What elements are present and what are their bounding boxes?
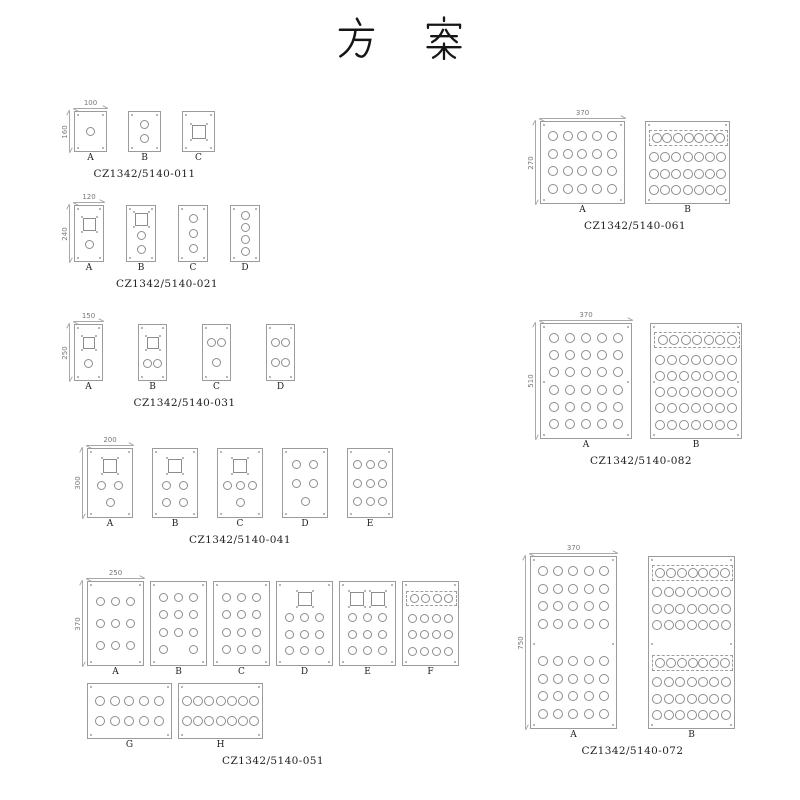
hole-circle xyxy=(563,149,573,159)
panels-strip: ABCDE xyxy=(87,448,393,530)
screw-hole xyxy=(543,124,545,126)
screw-hole xyxy=(612,559,614,561)
screw-hole xyxy=(162,376,164,378)
enclosure-panel xyxy=(128,111,161,152)
corner-tick xyxy=(95,335,97,337)
screw-hole xyxy=(627,326,629,328)
hole-circle xyxy=(584,674,594,684)
hole-circle xyxy=(664,604,674,614)
hole-circle xyxy=(597,419,607,429)
hole-circle xyxy=(688,658,698,668)
hole-circle xyxy=(143,359,152,368)
enclosure-panel xyxy=(540,323,632,439)
hole-circle xyxy=(285,630,294,639)
panel-row: 750AB xyxy=(518,556,735,741)
hole-circle xyxy=(691,355,701,365)
panel-letter: B xyxy=(175,667,182,678)
hole-circle xyxy=(592,131,602,141)
screw-hole xyxy=(612,724,614,726)
panels-strip: GH xyxy=(87,683,263,751)
width-dimension: 200 xyxy=(87,437,133,448)
hole-row xyxy=(129,213,153,226)
screw-hole xyxy=(203,257,205,259)
dimension-line xyxy=(69,111,70,152)
dimension-line xyxy=(530,553,617,554)
hole-circle xyxy=(599,566,609,576)
hole-circle xyxy=(683,169,693,179)
hole-circle xyxy=(671,169,681,179)
hole-circle xyxy=(581,402,591,412)
corner-tick xyxy=(190,123,192,125)
hole-circle xyxy=(667,371,677,381)
hole-row xyxy=(155,459,195,473)
width-dimension-label: 200 xyxy=(87,437,133,444)
hole-row xyxy=(342,613,393,622)
corner-tick xyxy=(312,590,314,592)
hole-circle xyxy=(664,710,674,720)
hole-row xyxy=(155,481,195,490)
corner-tick xyxy=(348,606,350,608)
panel-letter: A xyxy=(107,519,114,530)
hole-circle xyxy=(565,402,575,412)
hole-row xyxy=(216,628,267,637)
hole-circle xyxy=(189,628,198,637)
hole-circle xyxy=(664,677,674,687)
hole-circle xyxy=(691,420,701,430)
enclosure-panel xyxy=(152,448,198,518)
hole-circle xyxy=(106,498,115,507)
hole-row xyxy=(543,367,629,377)
hole-row xyxy=(205,338,228,347)
panel-column: B xyxy=(126,205,156,274)
width-dimension: 120 xyxy=(74,194,104,205)
screw-hole xyxy=(255,208,257,210)
hole-circle xyxy=(692,335,702,345)
screw-hole xyxy=(162,327,164,329)
hole-circle xyxy=(568,566,578,576)
screw-hole xyxy=(612,643,614,645)
hole-circle xyxy=(227,696,237,706)
screw-hole xyxy=(323,451,325,453)
screw-hole xyxy=(131,114,133,116)
hole-circle xyxy=(709,568,719,578)
square-cutout xyxy=(192,125,206,139)
screw-hole xyxy=(202,584,204,586)
hole-circle xyxy=(687,677,697,687)
hole-circle xyxy=(248,481,257,490)
panel-column: C xyxy=(217,448,263,530)
screw-hole xyxy=(181,686,183,688)
ganged-hole-group xyxy=(652,565,733,581)
hole-row xyxy=(90,498,130,507)
hole-circle xyxy=(607,166,617,176)
enclosure-panel xyxy=(276,581,333,666)
dimension-line xyxy=(74,202,104,203)
hole-circle xyxy=(607,149,617,159)
screw-hole xyxy=(350,451,352,453)
hole-circle xyxy=(238,716,248,726)
screw-hole xyxy=(185,114,187,116)
screw-hole xyxy=(730,559,732,561)
screw-hole xyxy=(203,208,205,210)
hole-circle xyxy=(348,613,357,622)
hole-circle xyxy=(193,696,203,706)
hole-circle xyxy=(420,630,429,639)
hole-row xyxy=(543,419,629,429)
screw-hole xyxy=(328,661,330,663)
hole-row xyxy=(153,610,204,619)
corner-tick xyxy=(81,216,83,218)
hole-circle xyxy=(538,584,548,594)
hole-circle xyxy=(241,211,250,220)
hole-circle xyxy=(652,620,662,630)
hole-circle xyxy=(549,419,559,429)
hole-circle xyxy=(444,594,453,603)
height-dimension: 160 xyxy=(62,111,74,152)
hole-circle xyxy=(677,658,687,668)
corner-tick xyxy=(96,231,98,233)
hole-row xyxy=(543,131,622,141)
enclosure-panel xyxy=(213,581,270,666)
hole-circle xyxy=(568,709,578,719)
hole-circle xyxy=(378,646,387,655)
square-cutout xyxy=(168,459,182,473)
hole-circle xyxy=(237,610,246,619)
screw-hole xyxy=(285,513,287,515)
hole-circle xyxy=(660,169,670,179)
width-dimension-label: 100 xyxy=(74,100,107,107)
screw-hole xyxy=(279,661,281,663)
screw-hole xyxy=(533,643,535,645)
height-dimension: 250 xyxy=(62,324,74,381)
hole-circle xyxy=(315,613,324,622)
hole-row xyxy=(279,592,330,606)
panel-column: B xyxy=(152,448,198,530)
hole-circle xyxy=(111,641,120,650)
screw-hole xyxy=(99,257,101,259)
hole-circle xyxy=(568,674,578,684)
screw-hole xyxy=(730,643,732,645)
panel-letter: B xyxy=(688,730,695,741)
hole-row xyxy=(342,630,393,639)
screw-hole xyxy=(77,208,79,210)
screw-hole xyxy=(98,376,100,378)
screw-hole xyxy=(226,327,228,329)
hole-circle xyxy=(300,630,309,639)
screw-hole xyxy=(220,451,222,453)
hole-row xyxy=(216,593,267,602)
hole-row xyxy=(220,498,260,507)
hole-circle xyxy=(694,185,704,195)
square-cutout xyxy=(298,592,312,606)
enclosure-panel xyxy=(87,581,144,666)
panel-column: F xyxy=(402,581,459,678)
panel-letter: C xyxy=(237,519,244,530)
hole-circle xyxy=(667,387,677,397)
hole-circle xyxy=(315,630,324,639)
enclosure-panel xyxy=(178,205,208,262)
screw-hole xyxy=(543,381,545,383)
screw-hole xyxy=(405,584,407,586)
panel-letter: A xyxy=(87,153,94,164)
screw-hole xyxy=(153,584,155,586)
screw-hole xyxy=(725,124,727,126)
hole-circle xyxy=(688,568,698,578)
enclosure-panel xyxy=(87,683,172,739)
hole-circle xyxy=(655,658,665,668)
screw-hole xyxy=(269,327,271,329)
enclosure-panel xyxy=(650,323,742,439)
screw-hole xyxy=(258,734,260,736)
hole-circle xyxy=(675,620,685,630)
dimension-line xyxy=(535,121,536,204)
hole-row xyxy=(543,149,622,159)
hole-circle xyxy=(691,371,701,381)
panel-column: A xyxy=(87,581,144,678)
hole-circle xyxy=(204,716,214,726)
hole-row xyxy=(205,358,228,367)
screw-hole xyxy=(129,208,131,210)
panel-column: E xyxy=(347,448,393,530)
panel-column: A xyxy=(540,121,625,216)
hole-circle xyxy=(538,601,548,611)
hole-circle xyxy=(727,387,737,397)
hole-circle xyxy=(548,184,558,194)
panel-row: 510AB xyxy=(528,323,742,451)
row-gap xyxy=(533,636,614,649)
screw-hole xyxy=(543,199,545,201)
hole-circle xyxy=(613,402,623,412)
hole-circle xyxy=(549,385,559,395)
panel-letter: F xyxy=(427,667,433,678)
hole-circle xyxy=(671,185,681,195)
hole-row xyxy=(90,716,169,726)
screw-hole xyxy=(627,381,629,383)
panel-column: B xyxy=(150,581,207,678)
corner-tick xyxy=(312,606,314,608)
hole-circle xyxy=(599,709,609,719)
enclosure-panel xyxy=(645,121,730,204)
screw-hole xyxy=(167,734,169,736)
hole-circle xyxy=(664,620,674,630)
corner-tick xyxy=(369,606,371,608)
panel-column: B xyxy=(128,111,161,164)
hole-circle xyxy=(703,387,713,397)
hole-circle xyxy=(97,481,106,490)
hole-row xyxy=(77,359,100,368)
dimension-line xyxy=(87,578,144,579)
screw-hole xyxy=(730,724,732,726)
panel-group: 250370ABCDEFGHCZ1342/5140-051 xyxy=(75,570,459,767)
hole-circle xyxy=(124,696,134,706)
corner-tick xyxy=(96,216,98,218)
screw-hole xyxy=(167,686,169,688)
hole-circle xyxy=(675,604,685,614)
screw-hole xyxy=(77,376,79,378)
panel-column: B xyxy=(138,324,167,393)
hole-row xyxy=(651,710,732,720)
enclosure-panel xyxy=(648,556,735,729)
panel-group: 370510ABCZ1342/5140-082 xyxy=(528,312,742,467)
hole-circle xyxy=(698,694,708,704)
screw-hole xyxy=(77,257,79,259)
hole-circle xyxy=(159,628,168,637)
hole-circle xyxy=(110,696,120,706)
panel-column: D xyxy=(282,448,328,530)
screw-hole xyxy=(185,147,187,149)
hole-circle xyxy=(652,133,662,143)
hole-circle xyxy=(599,619,609,629)
height-dimension: 510 xyxy=(528,323,540,439)
hole-row xyxy=(77,240,101,249)
screw-hole xyxy=(388,513,390,515)
hole-circle xyxy=(698,710,708,720)
hole-circle xyxy=(565,419,575,429)
corner-tick xyxy=(364,590,366,592)
hole-circle xyxy=(252,593,261,602)
hole-circle xyxy=(709,620,719,630)
dimension-line xyxy=(535,323,536,439)
hole-circle xyxy=(607,131,617,141)
hole-circle xyxy=(698,587,708,597)
hole-row xyxy=(181,244,205,253)
screw-hole xyxy=(102,114,104,116)
panel-letter: C xyxy=(238,667,245,678)
hole-circle xyxy=(553,691,563,701)
hole-circle xyxy=(174,610,183,619)
panel-column: C xyxy=(178,205,208,274)
panel-column: A xyxy=(74,111,107,164)
hole-circle xyxy=(703,371,713,381)
corner-tick xyxy=(247,473,249,475)
enclosure-panel xyxy=(150,581,207,666)
hole-circle xyxy=(237,593,246,602)
hole-circle xyxy=(705,133,715,143)
panel-letter: A xyxy=(579,205,586,216)
hole-circle xyxy=(86,127,95,136)
screw-hole xyxy=(131,147,133,149)
hole-circle xyxy=(538,709,548,719)
square-cutout xyxy=(371,592,385,606)
hole-row xyxy=(285,479,325,488)
hole-circle xyxy=(366,497,375,506)
hole-circle xyxy=(721,620,731,630)
enclosure-panel xyxy=(74,205,104,262)
hole-circle xyxy=(568,619,578,629)
hole-circle xyxy=(223,481,232,490)
scheme-sheet: 100160ABCCZ1342/5140-011120240ABCDCZ1342… xyxy=(0,0,800,800)
hole-circle xyxy=(720,568,730,578)
hole-circle xyxy=(137,245,146,254)
panel-column: A xyxy=(87,448,133,530)
hole-circle xyxy=(353,479,362,488)
hole-circle xyxy=(563,131,573,141)
panel-letter: D xyxy=(277,382,284,393)
panel-letter: E xyxy=(364,667,371,678)
hole-row xyxy=(543,385,629,395)
hole-circle xyxy=(652,677,662,687)
corner-tick xyxy=(95,349,97,351)
hole-circle xyxy=(271,338,280,347)
hole-circle xyxy=(410,594,419,603)
hole-circle xyxy=(241,247,250,256)
hole-circle xyxy=(189,610,198,619)
screw-hole xyxy=(653,326,655,328)
hole-circle xyxy=(592,184,602,194)
screw-hole xyxy=(193,513,195,515)
dimension-line xyxy=(540,320,632,321)
screw-hole xyxy=(155,513,157,515)
hole-row xyxy=(405,614,456,623)
hole-row xyxy=(131,120,158,129)
dimension-line xyxy=(525,556,526,729)
hole-circle xyxy=(292,479,301,488)
corner-tick xyxy=(364,606,366,608)
hole-circle xyxy=(538,656,548,666)
height-dimension: 370 xyxy=(75,581,87,666)
corner-tick xyxy=(145,349,147,351)
screw-hole xyxy=(265,584,267,586)
hole-circle xyxy=(577,166,587,176)
panel-row: 370ABCDEF xyxy=(75,581,459,678)
hole-circle xyxy=(222,610,231,619)
hole-row xyxy=(648,169,727,179)
hole-circle xyxy=(599,601,609,611)
enclosure-panel xyxy=(138,324,167,381)
hole-circle xyxy=(140,120,149,129)
panel-letter: E xyxy=(367,519,374,530)
height-dimension: 750 xyxy=(518,556,530,729)
width-dimension-label: 370 xyxy=(530,545,617,552)
hole-circle xyxy=(599,691,609,701)
hole-circle xyxy=(716,185,726,195)
hole-circle xyxy=(378,630,387,639)
hole-row xyxy=(285,497,325,506)
panel-letter: D xyxy=(301,519,308,530)
panel-column: A xyxy=(530,556,617,741)
panel-column: E xyxy=(339,581,396,678)
hole-circle xyxy=(652,604,662,614)
hole-circle xyxy=(216,696,226,706)
hole-circle xyxy=(721,710,731,720)
screw-hole xyxy=(290,327,292,329)
hole-circle xyxy=(548,149,558,159)
screw-hole xyxy=(233,208,235,210)
hole-row xyxy=(90,459,130,473)
hole-circle xyxy=(162,498,171,507)
screw-hole xyxy=(651,559,653,561)
hole-row xyxy=(269,338,292,347)
group-code: CZ1342/5140-011 xyxy=(62,168,215,180)
panel-letter: B xyxy=(149,382,156,393)
screw-hole xyxy=(620,199,622,201)
corner-tick xyxy=(81,349,83,351)
screw-hole xyxy=(77,147,79,149)
hole-circle xyxy=(687,694,697,704)
hole-row xyxy=(233,247,257,256)
panel-column: C xyxy=(182,111,215,164)
screw-hole xyxy=(153,661,155,663)
height-dimension: 300 xyxy=(75,448,87,518)
hole-row xyxy=(185,125,212,139)
screw-hole xyxy=(151,257,153,259)
corner-tick xyxy=(159,349,161,351)
hole-circle xyxy=(408,630,417,639)
hole-row xyxy=(77,337,100,349)
screw-hole xyxy=(210,114,212,116)
panel-row: 270AB xyxy=(528,121,730,216)
square-cutout xyxy=(83,337,95,349)
